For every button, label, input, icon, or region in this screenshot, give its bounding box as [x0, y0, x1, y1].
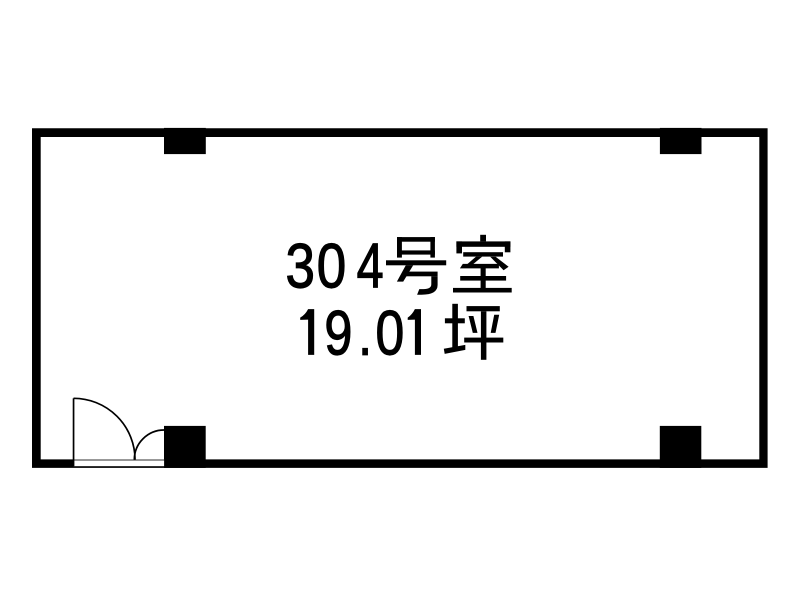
- svg-text:3: 3: [286, 231, 315, 301]
- svg-text:9: 9: [324, 298, 352, 369]
- svg-text:4: 4: [357, 230, 384, 301]
- svg-text:0: 0: [317, 231, 346, 301]
- svg-text:.: .: [358, 299, 373, 369]
- svg-text:0: 0: [376, 299, 405, 369]
